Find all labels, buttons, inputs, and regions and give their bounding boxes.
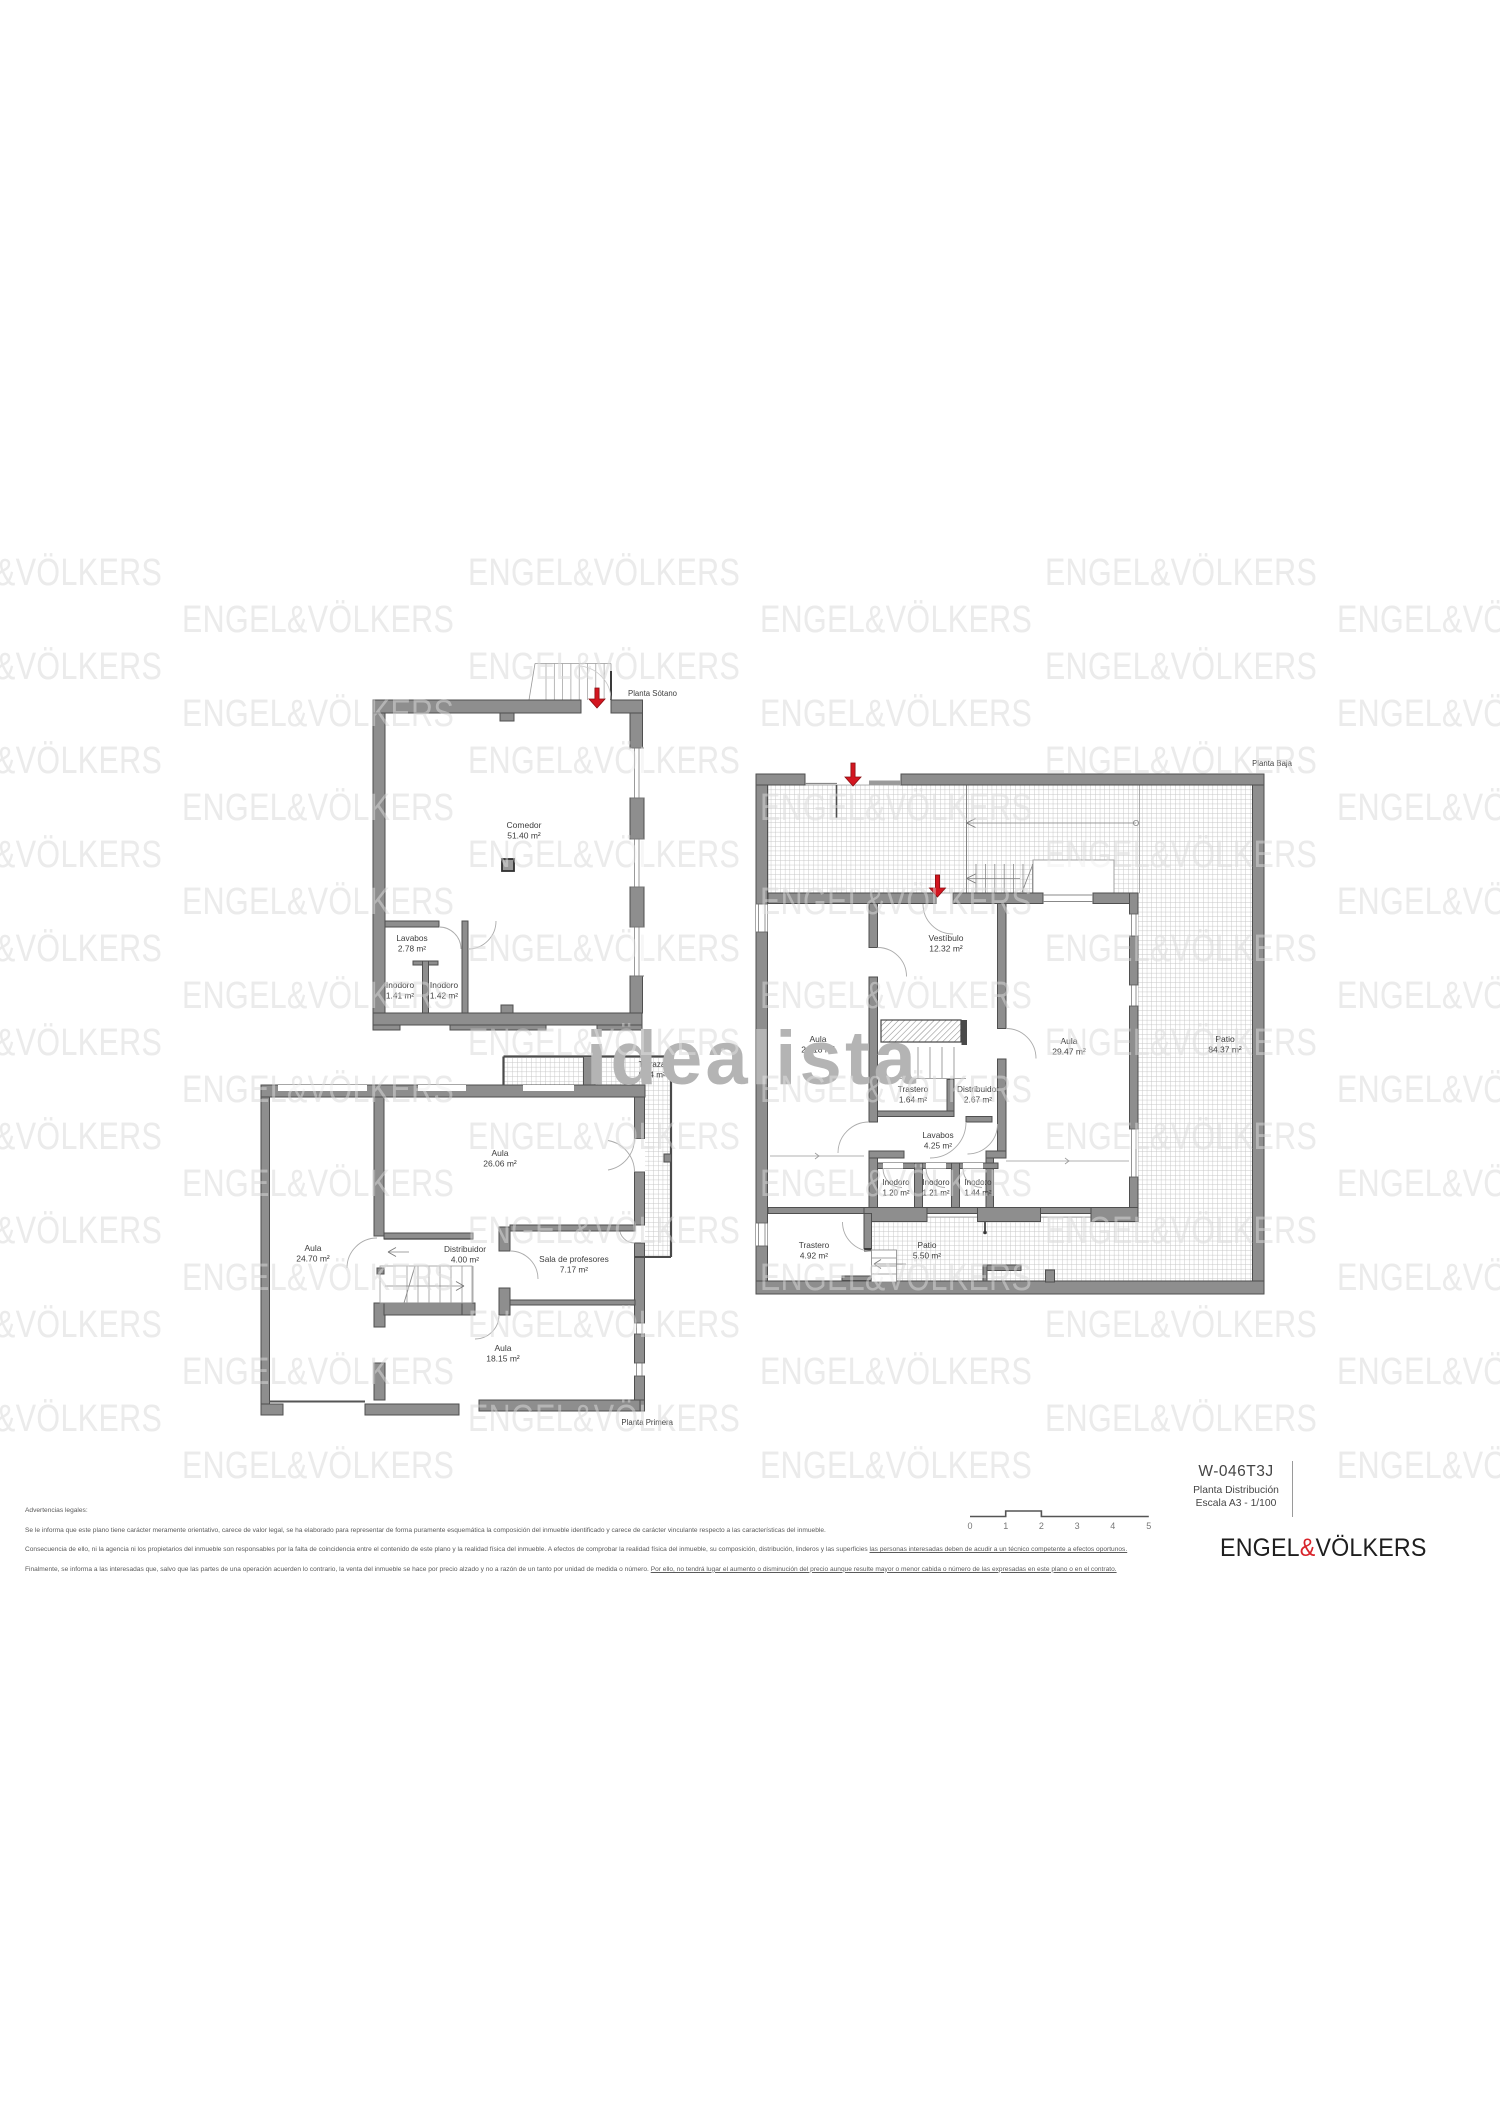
svg-text:26.06 m²: 26.06 m² [483, 1159, 517, 1169]
svg-text:4.25 m²: 4.25 m² [924, 1141, 952, 1151]
svg-text:18.15 m²: 18.15 m² [486, 1354, 520, 1364]
svg-text:2: 2 [1039, 1521, 1044, 1531]
svg-text:Aula: Aula [304, 1243, 321, 1253]
svg-text:1: 1 [1003, 1521, 1008, 1531]
svg-text:Lavabos: Lavabos [396, 933, 427, 943]
svg-text:3: 3 [1075, 1521, 1080, 1531]
svg-text:12.32 m²: 12.32 m² [929, 944, 963, 954]
svg-text:Comedor: Comedor [507, 820, 542, 830]
svg-text:4: 4 [1110, 1521, 1115, 1531]
svg-text:7.17 m²: 7.17 m² [560, 1265, 588, 1275]
svg-text:Patio: Patio [918, 1240, 937, 1250]
svg-text:0: 0 [967, 1521, 972, 1531]
svg-text:Planta Sótano: Planta Sótano [628, 689, 678, 698]
svg-text:Sala de profesores: Sala de profesores [539, 1254, 609, 1264]
svg-text:Trastero: Trastero [799, 1240, 830, 1250]
svg-text:Vestíbulo: Vestíbulo [929, 933, 964, 943]
svg-text:4.00 m²: 4.00 m² [451, 1255, 479, 1265]
svg-text:2.78 m²: 2.78 m² [398, 944, 426, 954]
svg-text:5: 5 [1146, 1521, 1151, 1531]
svg-text:Lavabos: Lavabos [922, 1130, 953, 1140]
